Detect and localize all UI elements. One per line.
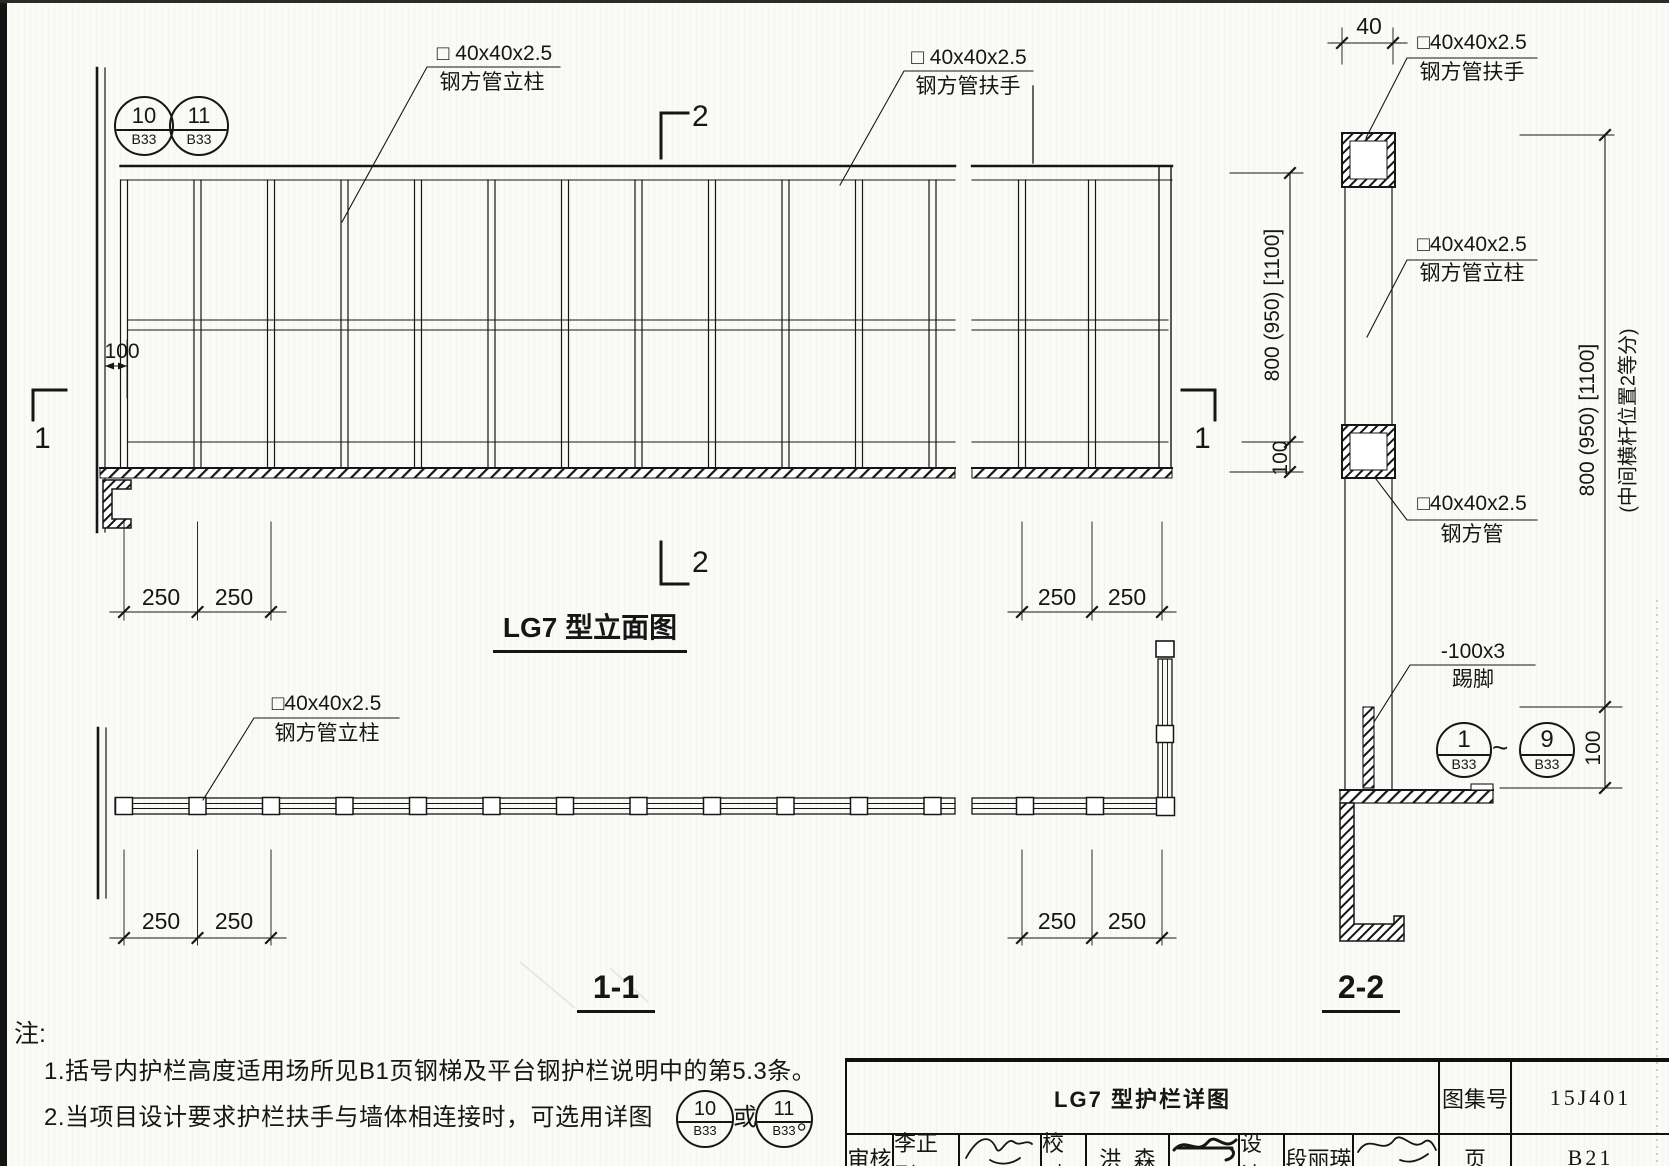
title-block-row-1: LG7 型护栏详图 图集号 15J401 (847, 1062, 1669, 1135)
label-plan-post-name: 钢方管立柱 (262, 722, 392, 746)
detail-bubble-9: 9 B33 (1519, 722, 1575, 778)
dim-250: 250 (1027, 584, 1087, 610)
detail-number: 10 (694, 1099, 716, 1121)
detail-bubble-1: 1 B33 (1436, 722, 1492, 778)
dim-250: 250 (204, 584, 264, 610)
section-2-2-title: 2-2 (1322, 969, 1400, 1013)
dim-height-section: 800 (950) [1100] (1576, 330, 1600, 510)
dim-250: 250 (1097, 584, 1157, 610)
design-name: 段丽瑛 (1285, 1135, 1354, 1166)
design-label: 设计 (1240, 1135, 1285, 1166)
sheet-title: LG7 型护栏详图 (847, 1062, 1440, 1133)
page-label: 页 (1440, 1135, 1512, 1166)
dim-100-section: 100 (1582, 723, 1606, 773)
elevation-title: LG7 型立面图 (493, 612, 687, 653)
detail-number: 1 (1457, 728, 1470, 754)
check-label: 校对 (1042, 1135, 1087, 1166)
elevation-linework (97, 67, 1172, 532)
dim-100-elevation: 100 (1269, 433, 1293, 483)
detail-sheet: B33 (116, 129, 172, 148)
label-elev-post-spec: □ 40x40x2.5 (427, 42, 562, 66)
label-sec-mid-spec: □40x40x2.5 (1407, 492, 1537, 516)
title-block: LG7 型护栏详图 图集号 15J401 审核 李正刚 校对 洪 森 设计 段丽… (845, 1058, 1669, 1166)
check-signature-cell (1170, 1135, 1240, 1166)
section-mark-1-right: 1 (1194, 422, 1211, 457)
drawing-sheet: 10 B33 11 B33 1 B33 ~ 9 B33 □ 40x40x2.5 … (0, 0, 1669, 1166)
section-mark-1-left: 1 (34, 422, 51, 457)
label-sec-post-name: 钢方管立柱 (1407, 262, 1537, 286)
section-mark-2-bottom: 2 (692, 546, 709, 581)
section-1-1-title: 1-1 (577, 969, 655, 1013)
label-sec-rail-spec: □40x40x2.5 (1407, 31, 1537, 55)
dim-250: 250 (1027, 908, 1087, 934)
dim-250: 250 (204, 908, 264, 934)
label-sec-kick-spec: -100x3 (1410, 640, 1536, 664)
label-sec-kick-name: 踢脚 (1410, 668, 1536, 692)
section-cut-marks (33, 113, 1215, 584)
note-1: 1.括号内护栏高度适用场所见B1页钢梯及平台钢护栏说明中的第5.3条。 (44, 1058, 816, 1086)
atlas-number: 15J401 (1512, 1062, 1669, 1133)
label-sec-mid-name: 钢方管 (1407, 523, 1537, 547)
plan-linework (98, 641, 1175, 898)
design-signature-cell (1354, 1135, 1440, 1166)
dim-250: 250 (131, 908, 191, 934)
dim-height-elevation: 800 (950) [1100] (1261, 215, 1285, 395)
tilde: ~ (1492, 732, 1508, 764)
label-elev-rail-spec: □ 40x40x2.5 (904, 46, 1034, 70)
section-mark-2-top: 2 (692, 100, 709, 135)
label-elev-post-name: 钢方管立柱 (432, 71, 552, 95)
audit-name: 李正刚 (894, 1135, 960, 1166)
detail-number: 11 (188, 105, 211, 129)
note-detail-bubble-10: 10 B33 (676, 1090, 734, 1148)
detail-sheet: B33 (1438, 754, 1490, 773)
label-sec-post-spec: □40x40x2.5 (1407, 233, 1537, 257)
detail-sheet: B33 (171, 129, 227, 148)
title-block-row-2: 审核 李正刚 校对 洪 森 设计 段丽瑛 页 B21 (847, 1135, 1669, 1166)
detail-sheet: B33 (1521, 754, 1573, 773)
detail-number: 11 (774, 1099, 795, 1121)
page-number: B21 (1512, 1135, 1669, 1166)
detail-sheet: B33 (678, 1121, 732, 1139)
note-2-period: 。 (797, 1108, 822, 1136)
dim-height-note: (中间横杆位置2等分) (1618, 311, 1641, 531)
label-elev-rail-name: 钢方管扶手 (908, 75, 1028, 99)
note-2-or: 或 (733, 1104, 758, 1132)
audit-signature-cell (960, 1135, 1042, 1166)
drawing-linework (0, 0, 1669, 1166)
label-plan-post-spec: □40x40x2.5 (254, 692, 399, 716)
atlas-number-label: 图集号 (1440, 1062, 1512, 1133)
notes-heading: 注: (14, 1020, 46, 1049)
check-name: 洪 森 (1087, 1135, 1170, 1166)
dim-40: 40 (1346, 13, 1392, 39)
detail-number: 9 (1540, 728, 1553, 754)
page-edges (0, 0, 1669, 1166)
detail-bubble-11: 11 B33 (169, 96, 229, 156)
note-2-text: 2.当项目设计要求护栏扶手与墙体相连接时，可选用详图 (44, 1104, 653, 1132)
label-sec-rail-name: 钢方管扶手 (1407, 61, 1537, 85)
dim-250: 250 (1097, 908, 1157, 934)
dim-250: 250 (131, 584, 191, 610)
detail-number: 10 (132, 105, 156, 129)
detail-bubble-10: 10 B33 (114, 96, 174, 156)
audit-label: 审核 (847, 1135, 894, 1166)
dim-100-offset: 100 (98, 340, 146, 364)
